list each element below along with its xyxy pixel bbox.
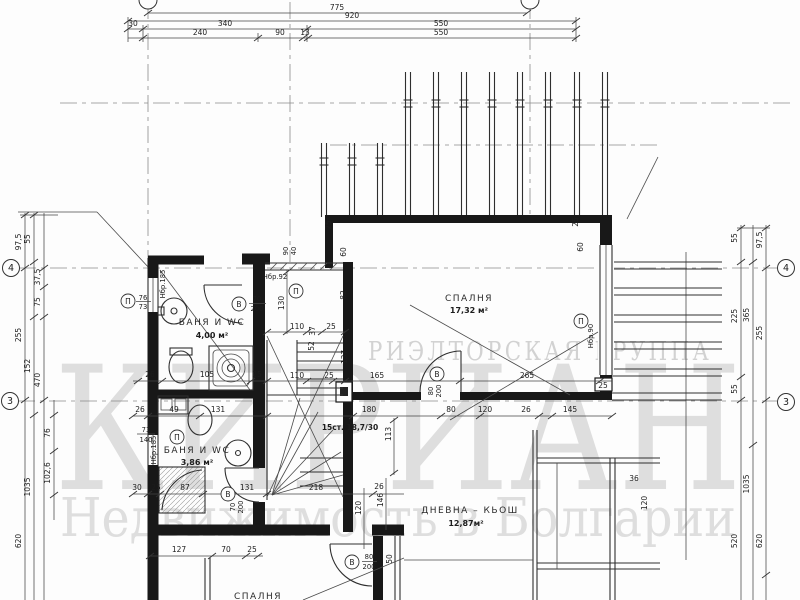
dim-label: 40 [290,247,298,256]
dim-label: 240 [193,28,208,37]
dim-label: 152 [23,359,32,374]
dim-label: 1035 [742,474,751,493]
dim-label: 225 [730,309,739,324]
dim-label: 55 [730,384,739,394]
dim-label: 25 [571,217,580,227]
dim-label: 470 [33,373,42,388]
dim-label: 255 [755,326,764,341]
axis-label-3-left: 3 [7,396,13,407]
dim-label: 146 [376,493,385,508]
opening-size: 80 [427,387,435,396]
dim-label: 255 [14,328,23,343]
window-tag: П [293,287,299,296]
dim-label: 60 [339,247,348,257]
dim-label: 55 [23,234,32,244]
dimension-chain-top: 775 920 30 340 550 240 90 13 550 [124,3,580,42]
opening-size: 73 [142,426,151,434]
dim-label: 70 [221,545,231,554]
dim-label: 131 [240,483,255,492]
dim-label: 25 [324,371,334,380]
dim-label: 340 [218,19,233,28]
dim-label: 775 [330,3,345,12]
window-note: Нбр.92 [263,273,287,281]
dim-label: 25 [252,370,262,379]
room-name-living: ДНЕВНА – КЬОШ [421,506,519,516]
dim-label: 50 [385,554,394,564]
axis-label-3-right: 3 [783,397,789,408]
opening-size: 200 [237,501,245,514]
dim-label: 165 [370,371,385,380]
dim-label: 13 [300,28,310,37]
dim-label: 130 [277,296,286,311]
dim-label: 36 [629,474,639,483]
dim-label: 110 [290,322,305,331]
opening-size: 80 [365,553,374,561]
dim-label: 80 [446,405,456,414]
window-tag: П [578,317,584,326]
dim-label: 265 [520,371,535,380]
dim-label: 365 [742,308,751,323]
window-note: Нбр.185 [159,270,167,299]
floor-plan-drawing: РИЭЛТОРСКАЯ ГРУППА КИРИАН Недвижимость в… [0,0,800,600]
dim-label: 87 [180,483,190,492]
room-area-bath2: 3,86 м² [181,458,214,467]
opening-size: 200 [251,305,264,313]
dim-label: 145 [563,405,578,414]
window-tag: П [125,297,131,306]
dim-label: 120 [640,496,649,511]
room-area-bath1: 4,00 м² [196,331,229,340]
dim-label: 620 [755,534,764,549]
dim-label: 26 [145,370,155,379]
dim-label: 30 [132,483,142,492]
dim-label: 25 [326,322,336,331]
dim-label: 55 [730,233,739,243]
dim-label: 75 [33,297,42,307]
axis-label-4-left: 4 [8,263,14,274]
dim-label: 180 [362,405,377,414]
dim-label: 520 [730,534,739,549]
dim-label: 550 [434,19,449,28]
dim-label: 25 [151,483,161,492]
floor-plan-page: РИЭЛТОРСКАЯ ГРУППА КИРИАН Недвижимость в… [0,0,800,600]
room-name-bedroom2: СПАЛНЯ [234,592,282,600]
dim-label: 26 [521,405,531,414]
dim-label: 37 [308,326,317,336]
dim-label: 60 [576,242,585,252]
door-tag: В [225,490,230,499]
pergola-slats [18,72,658,269]
dim-label: 620 [14,534,23,549]
dim-label: 37,5 [33,268,42,285]
dim-label: 25 [324,220,333,230]
window-tag: П [174,433,180,442]
dim-label: 127 [172,545,187,554]
dim-label: 90 [275,28,285,37]
room-name-bedroom: СПАЛНЯ [445,294,493,304]
opening-size: 70 [229,503,237,512]
dim-label: 97,5 [14,233,23,250]
room-name-bath2: БАНЯ И WC [164,446,231,456]
dim-label: 105 [200,370,215,379]
room-name-bath1: БАНЯ И WC [179,318,246,328]
opening-size: 76 [139,294,148,302]
dim-label: 30 [128,19,138,28]
dim-label: 82 [339,290,348,300]
room-area-bedroom: 17,32 м² [450,306,489,315]
dim-label: 110 [290,371,305,380]
dim-label: 26 [135,405,145,414]
dim-label: 25 [247,545,257,554]
opening-size: 200 [435,385,443,398]
dim-label: 26 [374,482,384,491]
dim-label: 25 [598,381,608,390]
dim-label: 102,6 [43,462,52,484]
dim-label: 97,5 [755,231,764,248]
dim-label: 113 [384,427,393,442]
dim-label: 49 [169,405,179,414]
opening-size: 200 [363,563,376,571]
window-note: Нбр.90 [587,324,595,348]
dim-label: 52 [307,341,316,351]
dim-label: 90 [282,247,290,256]
dim-label: 137 [340,350,349,365]
door-tag: В [236,300,241,309]
dim-label: 920 [345,11,360,20]
dim-label: 131 [211,405,226,414]
door-tag: В [349,558,354,567]
door-tag: В [434,370,439,379]
opening-size: 70 [253,295,262,303]
dimension-chain-left: 97,5 55 37,5 75 255 152 470 76 102,6 103… [14,212,58,600]
dim-label: 120 [478,405,493,414]
opening-size: 73 [139,303,148,311]
dim-label: 218 [309,483,324,492]
stairs-label: 15ст. 18,7/30 [322,423,378,432]
dim-label: 550 [434,28,449,37]
axis-label-4-right: 4 [783,263,789,274]
window-note: Нбр.185 [150,436,158,465]
room-area-living: 12,87м² [448,519,484,528]
dim-label: 1035 [23,477,32,496]
dim-label: 76 [43,428,52,438]
dim-label: 120 [354,501,363,516]
